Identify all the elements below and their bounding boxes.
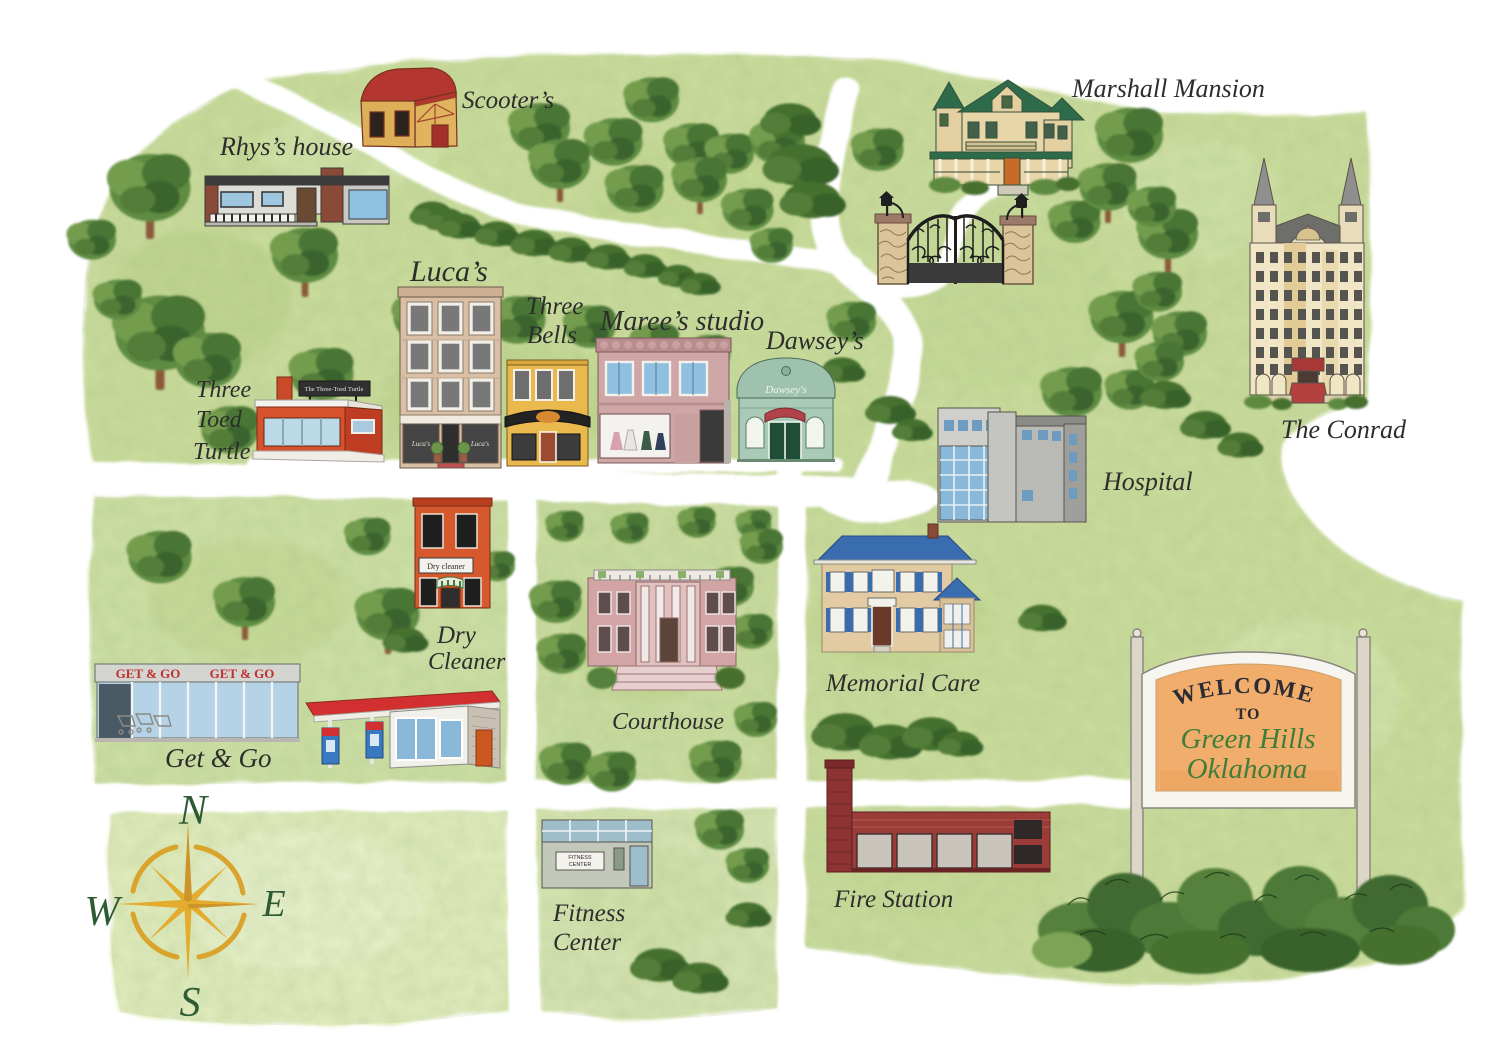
svg-text:Fitness: Fitness [552,900,625,927]
svg-text:Dry cleaner: Dry cleaner [427,562,465,571]
svg-text:W: W [85,889,124,935]
svg-text:FITNESS: FITNESS [568,855,592,861]
svg-text:Bells: Bells [527,322,577,349]
svg-text:Get & Go: Get & Go [165,743,271,773]
svg-text:Dawsey's: Dawsey's [764,384,806,396]
svg-text:The Conrad: The Conrad [1281,415,1407,444]
svg-text:Marshall Mansion: Marshall Mansion [1071,74,1265,103]
svg-text:Cleaner: Cleaner [428,649,506,675]
svg-text:Hospital: Hospital [1102,467,1193,496]
svg-text:Dawsey’s: Dawsey’s [765,326,864,355]
svg-text:Maree’s studio: Maree’s studio [599,306,764,337]
svg-text:Luca's: Luca's [470,440,489,448]
svg-text:TO: TO [1236,706,1261,723]
svg-text:The Three-Toed Turtle: The Three-Toed Turtle [305,386,364,393]
svg-text:Turtle: Turtle [193,439,251,465]
svg-text:Toed: Toed [196,407,243,433]
svg-text:Rhys’s house: Rhys’s house [219,132,353,161]
svg-text:E: E [261,883,285,925]
svg-text:Courthouse: Courthouse [612,709,724,735]
svg-text:S: S [180,980,201,1026]
svg-text:Three: Three [196,377,251,403]
svg-text:Memorial Care: Memorial Care [825,670,980,697]
svg-text:Luca's: Luca's [411,440,430,448]
svg-text:Fire Station: Fire Station [833,886,953,913]
svg-text:Luca’s: Luca’s [409,255,488,288]
svg-text:Dry: Dry [436,622,477,649]
svg-text:Center: Center [553,929,621,956]
svg-text:Three: Three [526,293,583,320]
svg-text:CENTER: CENTER [569,862,592,868]
svg-text:Green Hills: Green Hills [1180,723,1315,755]
svg-text:N: N [178,788,209,834]
svg-text:Scooter’s: Scooter’s [462,87,554,114]
svg-text:Oklahoma: Oklahoma [1187,753,1308,785]
svg-text:GET & GO: GET & GO [210,666,275,681]
svg-text:GET & GO: GET & GO [116,666,181,681]
